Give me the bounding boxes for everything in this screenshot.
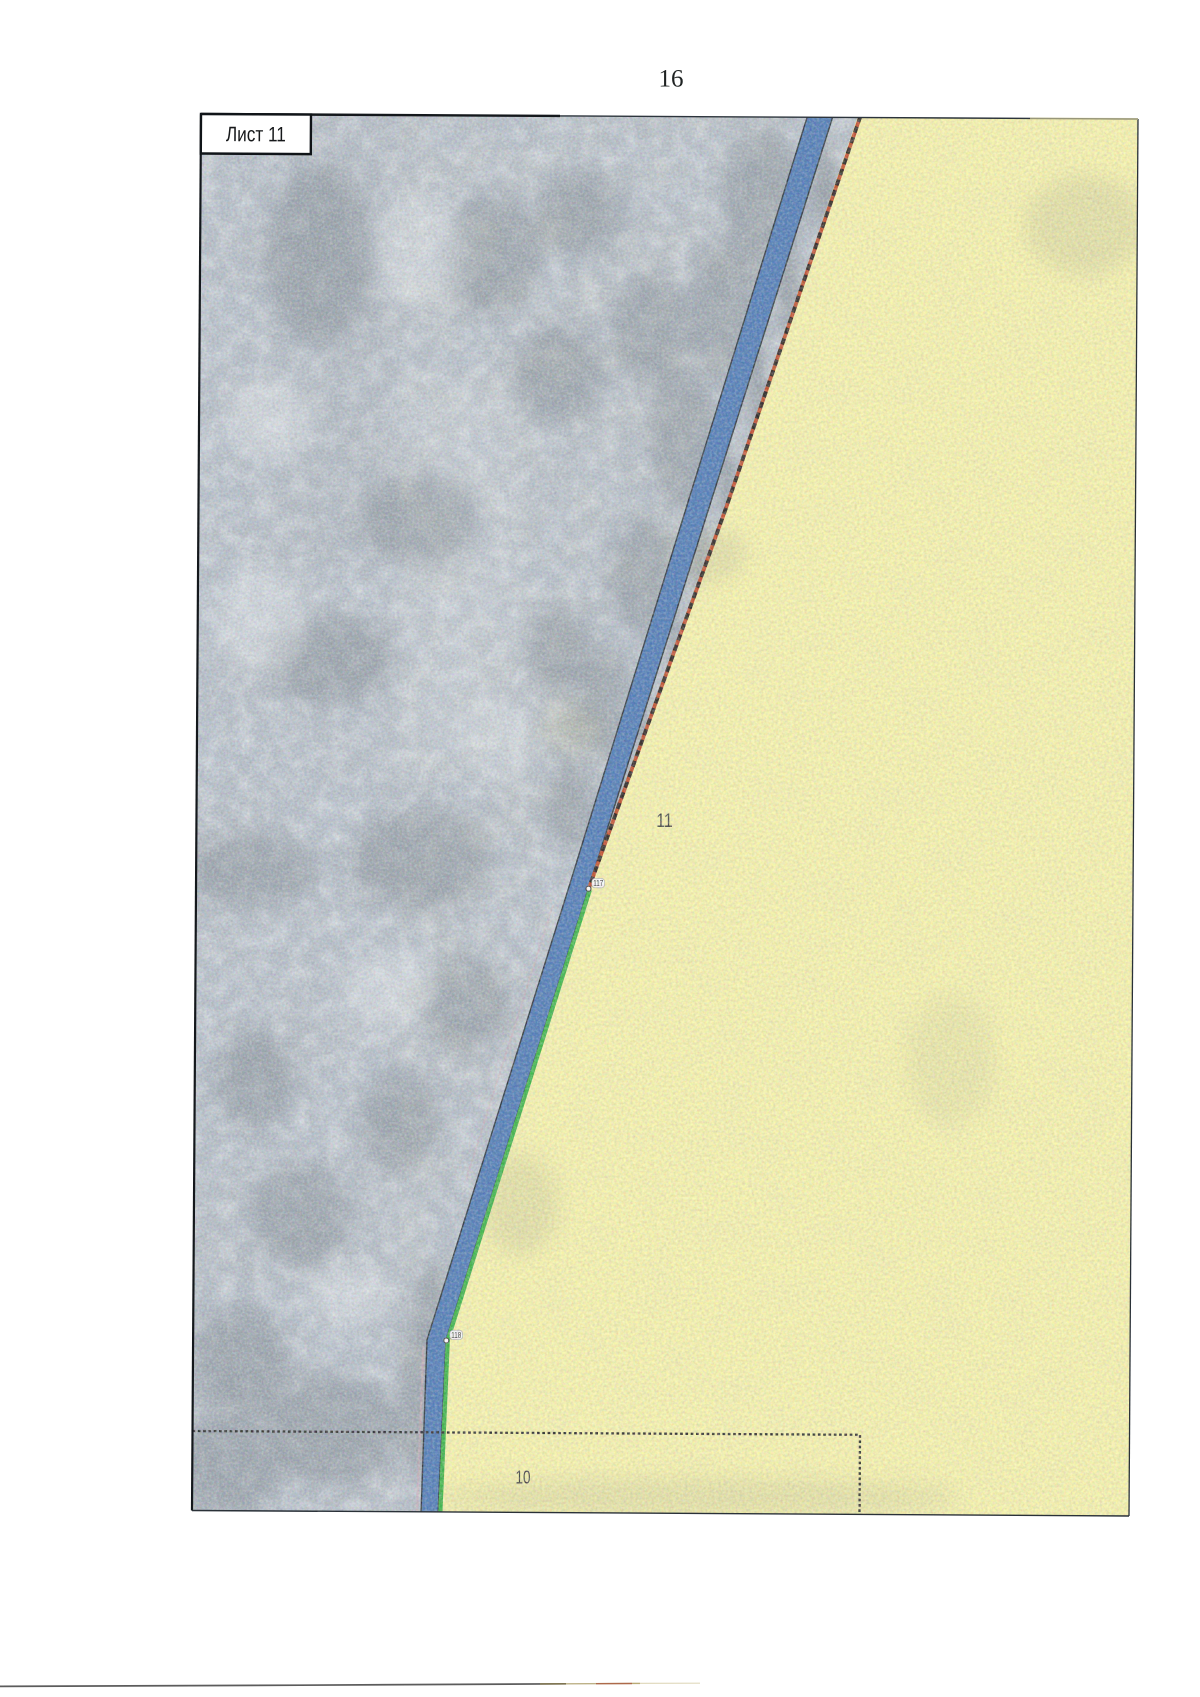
svg-text:16: 16 <box>659 66 684 93</box>
svg-text:Лист 11: Лист 11 <box>226 123 286 146</box>
